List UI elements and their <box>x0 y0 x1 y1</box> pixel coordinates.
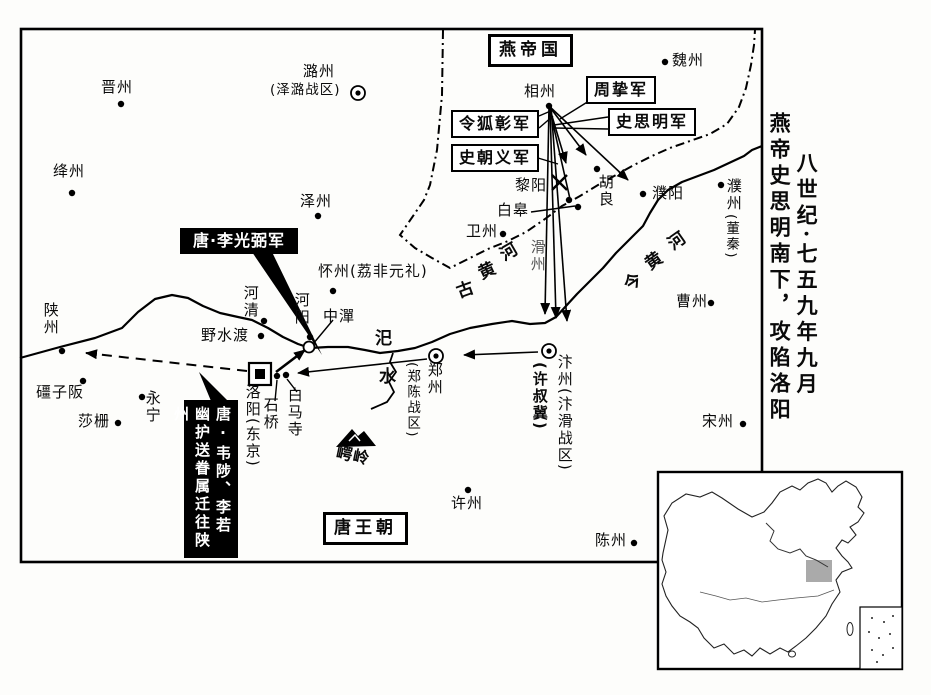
place-label-zezhou: 泽州 <box>300 194 332 210</box>
place-label-weizhou-north: 魏州 <box>672 53 704 69</box>
place-label-yeshudu: 野水渡 <box>201 328 249 344</box>
historical-map-shi-siming-campaign: 八世纪·七五九年九月 燕帝史思明南下，攻陷洛阳 燕帝国 唐王朝 周挚军 史思明军… <box>0 0 931 695</box>
place-label-heyang: 河阳 <box>293 292 309 326</box>
china-inset-map <box>658 472 902 669</box>
place-label-shanzhou: 陕州 <box>42 302 58 336</box>
yan-attack-arrows <box>545 106 628 321</box>
army-label-li-guangbi: 唐·李光弼军 <box>180 228 298 254</box>
place-label-puzhou: 濮州 <box>725 178 741 212</box>
battle-x-mark <box>552 175 567 190</box>
region-label-yan-empire: 燕帝国 <box>488 34 573 67</box>
map-title-event: 燕帝史思明南下，攻陷洛阳 <box>767 112 791 424</box>
place-label-huaizhou: 怀州(荔非元礼) <box>318 264 428 280</box>
heyang-bridge-circle <box>304 342 315 353</box>
army-label-shichaoyi: 史朝义军 <box>451 144 539 172</box>
place-label-puzhou-note: (董秦) <box>724 214 738 260</box>
inset-highlight-region <box>806 560 832 582</box>
place-label-shazha: 莎栅 <box>78 414 110 430</box>
place-label-huliang: 胡良 <box>597 174 613 208</box>
place-label-caozhou: 曹州 <box>676 294 708 310</box>
place-label-bianzhou: 汴州(汴滑战区) <box>556 354 572 472</box>
army-label-zhouzhi: 周挚军 <box>586 76 656 104</box>
place-label-liyang: 黎阳 <box>515 178 547 194</box>
place-label-bianzhou-note: (许叔冀) <box>531 362 547 431</box>
place-label-luzhou-note: (泽潞战区) <box>270 83 341 97</box>
army-label-escort-route: 唐·韦陟、李若幽护送眷属迁往陕州 <box>184 400 238 558</box>
place-label-jiangziban: 礓子阪 <box>36 385 84 401</box>
place-label-jiangzhou: 绛州 <box>53 164 85 180</box>
place-label-heqing: 河清 <box>242 285 258 319</box>
place-label-puyang: 濮阳 <box>652 186 684 202</box>
river-label-sishui-2: 水 <box>379 369 397 387</box>
place-label-zhengzhou: 郑州 <box>426 362 442 396</box>
place-label-baimasi: 白马寺 <box>286 387 302 438</box>
region-label-tang-dynasty: 唐王朝 <box>323 512 408 545</box>
place-label-songzhou: 宋州 <box>702 414 734 430</box>
escort-dashed-route <box>86 353 247 371</box>
place-label-weizhou-west: 卫州 <box>466 224 498 240</box>
place-label-luoyang: 洛阳(东京) <box>244 384 260 468</box>
place-label-baigao: 白皋 <box>497 203 529 219</box>
place-label-yongning: 永宁 <box>144 390 160 424</box>
place-label-huazhou: 滑州 <box>529 239 545 273</box>
place-label-jinzhou: 晋州 <box>101 80 133 96</box>
place-label-xiangzhou: 相州 <box>524 84 556 100</box>
place-label-zhengzhou-note: (郑陈战区) <box>405 362 419 439</box>
place-label-zhongtan: 中潬 <box>323 309 355 325</box>
place-label-luzhou: 潞州 <box>303 64 335 80</box>
army-label-linghuzhang: 令狐彰军 <box>451 110 539 138</box>
place-label-xuzhou: 许州 <box>451 496 483 512</box>
place-label-chenzhou: 陈州 <box>595 533 627 549</box>
luoyang-capital-symbol <box>249 363 271 385</box>
map-title-date: 八世纪·七五九年九月 <box>794 152 818 398</box>
river-label-sishui-1: 汜 <box>375 331 393 349</box>
place-label-shiqiao: 石桥 <box>262 397 278 431</box>
army-label-shisiming: 史思明军 <box>608 108 696 136</box>
